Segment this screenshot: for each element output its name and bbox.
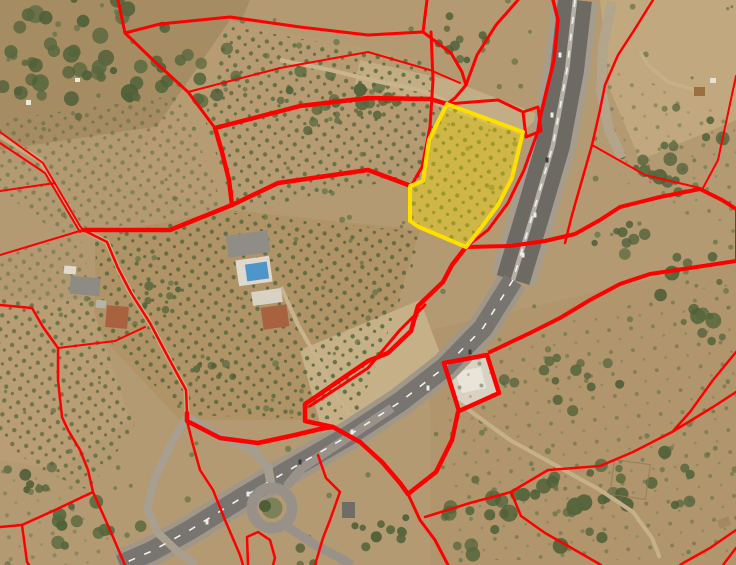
vehicle [534,213,537,218]
vehicle [351,430,354,435]
hut-northeast [694,87,705,96]
vehicle [546,158,549,163]
swimming-pool [245,262,269,282]
vehicle [247,492,250,497]
farm2-gray-roof [69,276,100,297]
white-speck-northwest-2 [75,78,80,82]
vehicle [522,253,525,258]
map-viewport[interactable] [0,0,736,565]
terracotta-building [261,304,290,329]
vehicle [206,520,209,525]
white-speck-northeast [710,78,716,83]
vehicle [299,460,302,465]
farm2-white [64,265,77,274]
farm2-shed [96,300,107,309]
vehicle [559,53,562,58]
vehicle [469,350,472,355]
white-speck-northwest-1 [26,100,31,105]
building-by-roundabout [342,502,355,518]
farm2-terracotta [105,305,129,329]
vehicle [551,113,554,118]
vehicle [427,386,430,391]
satellite-map[interactable] [0,0,736,565]
